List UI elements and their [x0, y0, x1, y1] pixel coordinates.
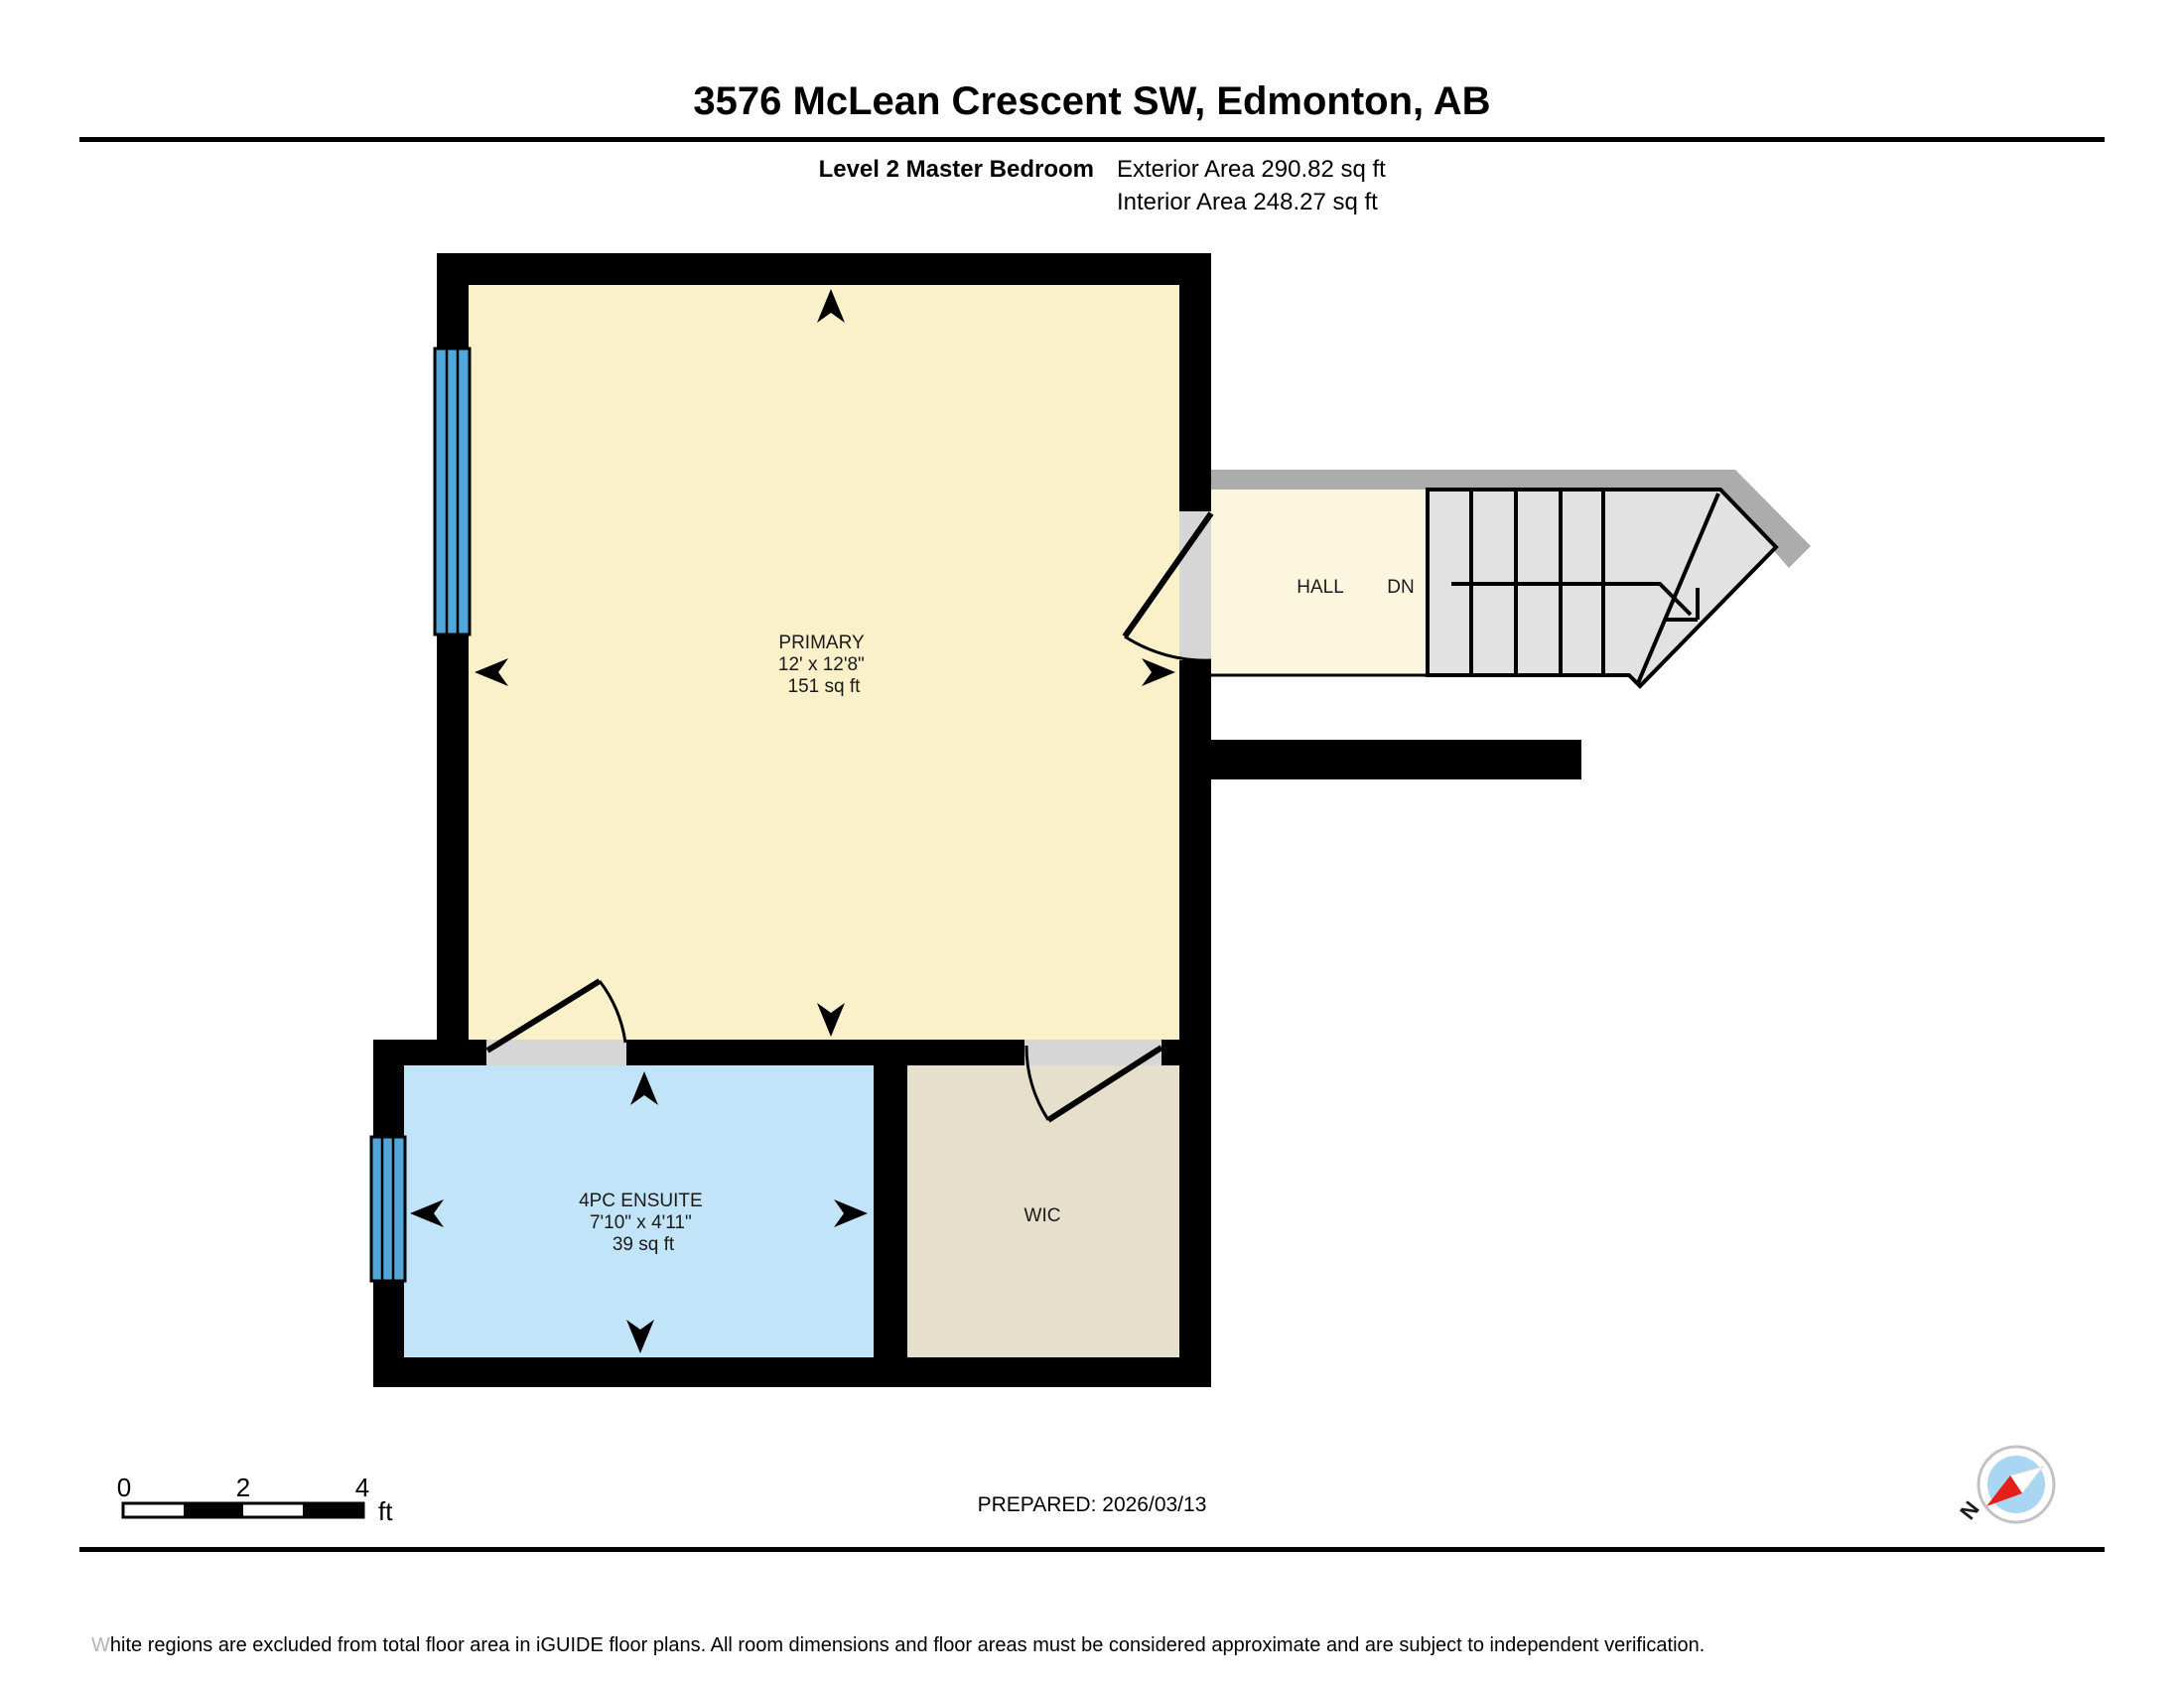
disclaimer-text: White regions are excluded from total fl… [91, 1634, 1705, 1657]
wic-room-label: WIC [1024, 1205, 1061, 1226]
primary-room-label: PRIMARY 12' x 12'8" 151 sq ft [778, 633, 870, 697]
room-floors [404, 285, 1428, 1357]
prepared-date-label: PREPARED: 2026/03/13 [0, 1493, 2184, 1517]
wall-below-hall [1211, 740, 1581, 779]
wall-bottom [373, 1357, 1211, 1387]
footer-divider-rule [79, 1547, 2105, 1552]
stairs-dn-label: DN [1387, 577, 1414, 598]
wall-right [1179, 253, 1211, 1387]
ensuite-window [371, 1137, 405, 1281]
disclaimer-body: hite regions are excluded from total flo… [110, 1634, 1705, 1656]
disclaimer-lead-char: W [91, 1634, 110, 1656]
page: { "header": { "title": "3576 McLean Cres… [0, 0, 2184, 1688]
wall-ensuite-wic-divider [874, 1040, 907, 1357]
floor-plan: PRIMARY 12' x 12'8" 151 sq ft 4PC ENSUIT… [0, 0, 2184, 1688]
wall-top [437, 253, 1211, 285]
primary-window [435, 349, 470, 634]
ensuite-floor [404, 1065, 874, 1357]
hall-room-label: HALL [1297, 577, 1344, 598]
ensuite-door-threshold [486, 1040, 626, 1065]
